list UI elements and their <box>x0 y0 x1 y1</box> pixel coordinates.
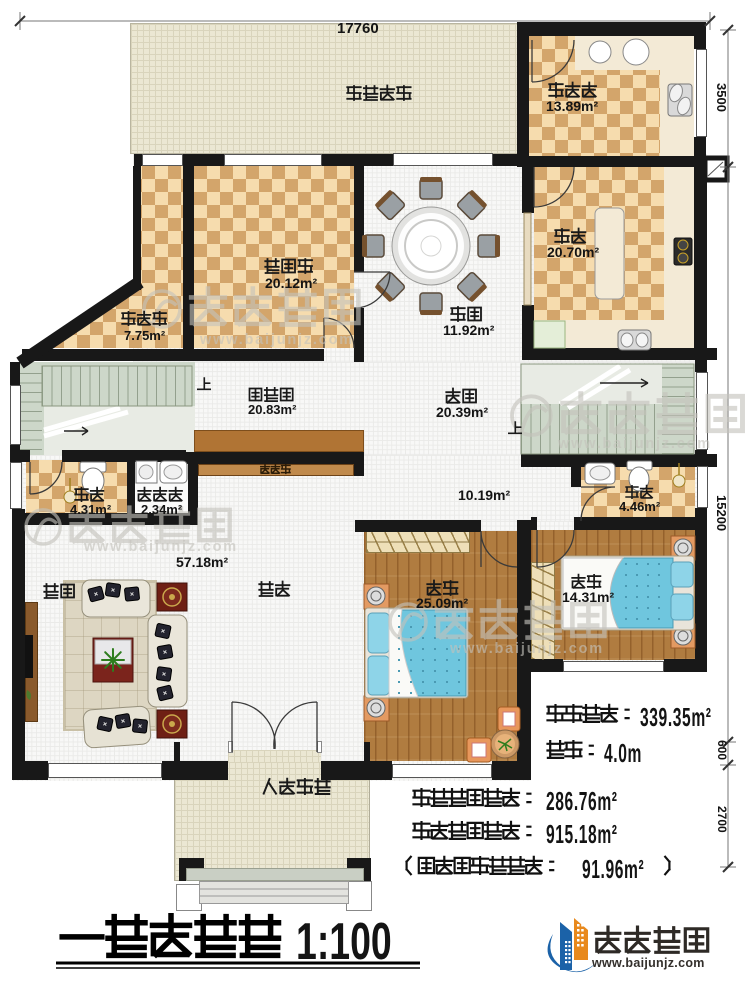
svg-text:www.baijunjz.com: www.baijunjz.com <box>83 539 238 555</box>
svg-text:www.baijunjz.com: www.baijunjz.com <box>591 956 705 970</box>
svg-text:www.baijunjz.com: www.baijunjz.com <box>449 641 604 657</box>
svg-text:www.baijunjz.com: www.baijunjz.com <box>199 332 354 348</box>
svg-text:www.baijunjz.com: www.baijunjz.com <box>557 436 712 452</box>
